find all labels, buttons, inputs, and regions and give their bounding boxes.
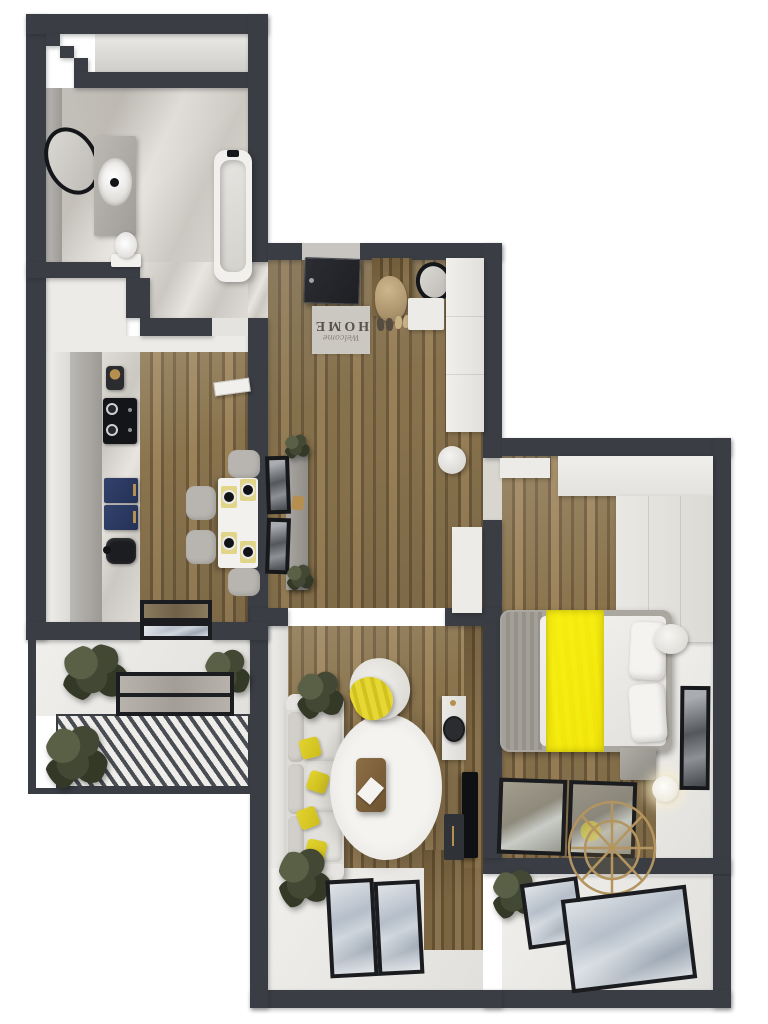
kitchen-wall-face — [46, 352, 70, 622]
living-plant — [278, 846, 330, 912]
bedroom-wall-art — [680, 686, 711, 790]
cabinet-gold-handle — [133, 511, 136, 523]
desk-chair — [443, 716, 465, 742]
kitchen-upper-cabinet — [46, 278, 126, 336]
nightstand-round — [654, 624, 688, 654]
hall-wardrobe — [446, 258, 484, 432]
wall-kitchen-bottom-right — [212, 622, 268, 640]
wardrobe-seam — [680, 496, 681, 642]
hall-plant — [284, 434, 310, 460]
wall-hall-right-upper — [483, 243, 502, 458]
window-pane — [374, 880, 425, 976]
floor-plan: Welcome HOME — [0, 0, 768, 1024]
dinner-plate — [241, 483, 255, 497]
balcony-plant — [44, 724, 108, 792]
hanging-coats — [375, 276, 407, 322]
living-floor-window — [325, 876, 424, 981]
front-door-handle — [309, 278, 314, 283]
wall-bottom-left — [250, 990, 502, 1008]
shaft-room-floor — [95, 34, 248, 72]
cooktop-knob — [128, 428, 132, 432]
kitchen-top-band — [46, 336, 248, 352]
bed-pillow — [628, 683, 668, 743]
right-balcony-window — [561, 885, 698, 994]
fur-rug — [330, 714, 442, 860]
bathtub-faucet-icon — [227, 150, 239, 157]
dinner-plate — [241, 545, 255, 559]
wall-right-balcony-right — [713, 876, 731, 1008]
wall-left-outer — [26, 14, 46, 640]
hall-wardrobe-seam — [446, 316, 484, 317]
kitchen-faucet-icon — [103, 546, 111, 554]
kitchen-gray-band — [70, 352, 102, 622]
gold-decor — [291, 495, 305, 511]
sink-faucet-icon — [110, 178, 119, 187]
kitchen-balcony-window — [140, 622, 212, 640]
toilet-bowl — [115, 232, 137, 258]
balcony-glass-door-frames — [116, 672, 234, 716]
welcome-mat: Welcome HOME — [312, 306, 370, 354]
wall-step — [60, 46, 74, 58]
nightstand-cube — [620, 748, 656, 780]
tv — [462, 772, 478, 858]
kitchen-floor-door-frame — [140, 600, 212, 622]
wall-bottom-right — [483, 990, 731, 1008]
window-pane — [497, 778, 568, 856]
cooktop-burner — [106, 403, 118, 415]
bathtub-basin — [220, 160, 246, 272]
wall-living-left — [250, 608, 268, 1008]
dining-chair — [186, 530, 216, 564]
cooktop-knob — [128, 408, 132, 412]
shoes-pair — [386, 318, 393, 331]
wall-top-outer — [26, 14, 268, 34]
coffee-maker — [106, 366, 124, 390]
dinner-plate — [222, 536, 236, 550]
hall-bench — [408, 298, 444, 330]
hanging-chair — [566, 798, 658, 898]
hall-pouf — [438, 446, 466, 474]
bed-yellow-runner — [546, 610, 604, 752]
dining-chair — [186, 486, 216, 520]
wall-step — [46, 34, 60, 46]
media-console-handle — [452, 826, 454, 846]
wall-bedroom-right — [713, 438, 731, 876]
media-console — [444, 814, 464, 860]
dining-chair — [228, 568, 260, 596]
door-frame-divider — [120, 693, 230, 697]
bedroom-wardrobe-top — [558, 456, 713, 496]
wall-hall-top-left — [268, 243, 302, 260]
wall-step-vertical — [126, 278, 150, 318]
wall-kitchen-bottom-left — [26, 622, 140, 640]
cooktop-burner — [106, 424, 118, 436]
dinner-plate — [222, 490, 236, 504]
dining-chair — [228, 450, 260, 478]
wall-shaft-bottom — [74, 72, 248, 88]
welcome-mat-line1: Welcome — [323, 334, 359, 342]
desk-lamp — [450, 700, 456, 706]
balcony-wall-bottom — [28, 788, 252, 794]
hall-plant — [286, 564, 314, 592]
sofa-back-cushion — [288, 764, 304, 814]
cabinet-gold-handle — [133, 484, 136, 496]
bedroom-shelf — [500, 458, 550, 478]
wall-bath-bottom — [140, 318, 212, 336]
wall-bedroom-top — [502, 438, 731, 456]
picture-frame — [265, 456, 291, 515]
sofa-plant — [296, 670, 344, 722]
hall-cabinet-low — [452, 527, 482, 613]
welcome-mat-line2: HOME — [313, 319, 369, 334]
wall-step — [74, 58, 88, 72]
window-pane — [325, 878, 378, 978]
hall-wardrobe-seam — [446, 374, 484, 375]
balcony-wall-left — [28, 640, 36, 790]
bath-door-threshold — [212, 318, 248, 336]
living-left-wall-face — [268, 626, 288, 868]
picture-frame — [265, 518, 291, 575]
bed-foot-bench — [502, 612, 542, 750]
